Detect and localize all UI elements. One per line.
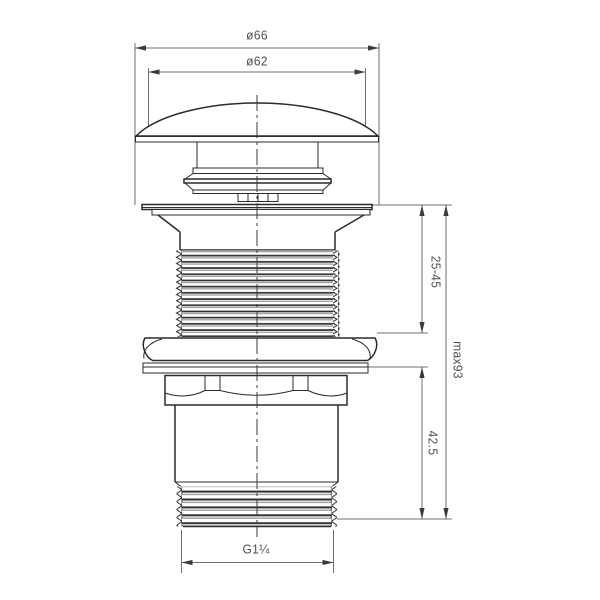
arrowhead-up-icon: [443, 205, 448, 216]
dim-label-cap-outer-diameter: ø66: [246, 28, 268, 43]
washer: [143, 363, 368, 373]
arrowhead-down-icon: [443, 508, 448, 519]
dim-lower-body-height: [369, 367, 429, 519]
dim-label-lower-body-height: 42.5: [426, 431, 441, 456]
arrowhead-left-icon: [182, 560, 193, 565]
flange-transition: [158, 215, 364, 232]
arrowhead-left-icon: [149, 69, 160, 74]
dim-label-clamping-range: 25-45: [429, 256, 444, 288]
dim-label-connection-thread: G1¼: [242, 542, 269, 557]
sealing-flange: [143, 338, 376, 361]
technical-drawing: ø66 ø62 25-45 max93 42.5 G1¼: [0, 0, 600, 600]
arrowhead-up-icon: [419, 205, 424, 216]
hex-nut: [165, 376, 347, 406]
drawing-canvas: [0, 0, 600, 600]
arrowhead-right-icon: [368, 45, 379, 50]
arrowhead-up-icon: [419, 367, 424, 378]
dim-label-cap-top-diameter: ø62: [246, 54, 268, 69]
arrowhead-down-icon: [419, 322, 424, 333]
dim-label-max-height: max93: [451, 341, 466, 379]
arrowhead-right-icon: [355, 69, 366, 74]
dim-max-height: [337, 205, 452, 519]
arrowhead-right-icon: [323, 560, 334, 565]
arrowhead-left-icon: [135, 45, 146, 50]
body-cylinder: [175, 405, 338, 482]
arrowhead-down-icon: [419, 508, 424, 519]
